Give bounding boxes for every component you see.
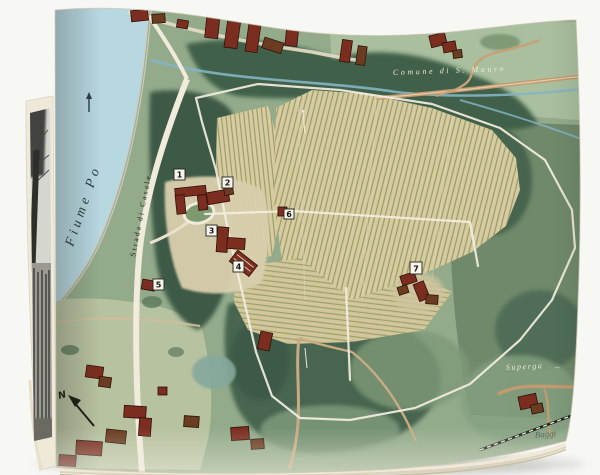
photograph-of-open-book: 1 2 3 4 5 6 7 Fiume Po Strada di Casale …	[0, 0, 600, 475]
svg-text:4: 4	[236, 263, 242, 272]
svg-text:1: 1	[177, 171, 183, 180]
left-page	[26, 96, 56, 470]
map-marker-5: 5	[153, 279, 164, 290]
svg-text:7: 7	[413, 265, 419, 274]
map-marker-1: 1	[174, 169, 185, 180]
svg-text:3: 3	[209, 227, 215, 236]
map-marker-2: 2	[222, 177, 233, 188]
book-scene: 1 2 3 4 5 6 7 Fiume Po Strada di Casale …	[0, 0, 600, 475]
map-marker-6: 6	[284, 209, 294, 219]
map-marker-7: 7	[410, 262, 422, 274]
map-marker-4: 4	[233, 261, 244, 272]
map-page: 1 2 3 4 5 6 7 Fiume Po Strada di Casale …	[50, 0, 590, 475]
gutter-shadow	[55, 0, 100, 475]
right-edge-shade	[550, 0, 584, 475]
svg-text:6: 6	[286, 210, 292, 219]
svg-text:5: 5	[156, 281, 162, 290]
map-marker-3: 3	[206, 225, 217, 236]
svg-text:2: 2	[225, 179, 231, 188]
pond	[192, 355, 236, 389]
